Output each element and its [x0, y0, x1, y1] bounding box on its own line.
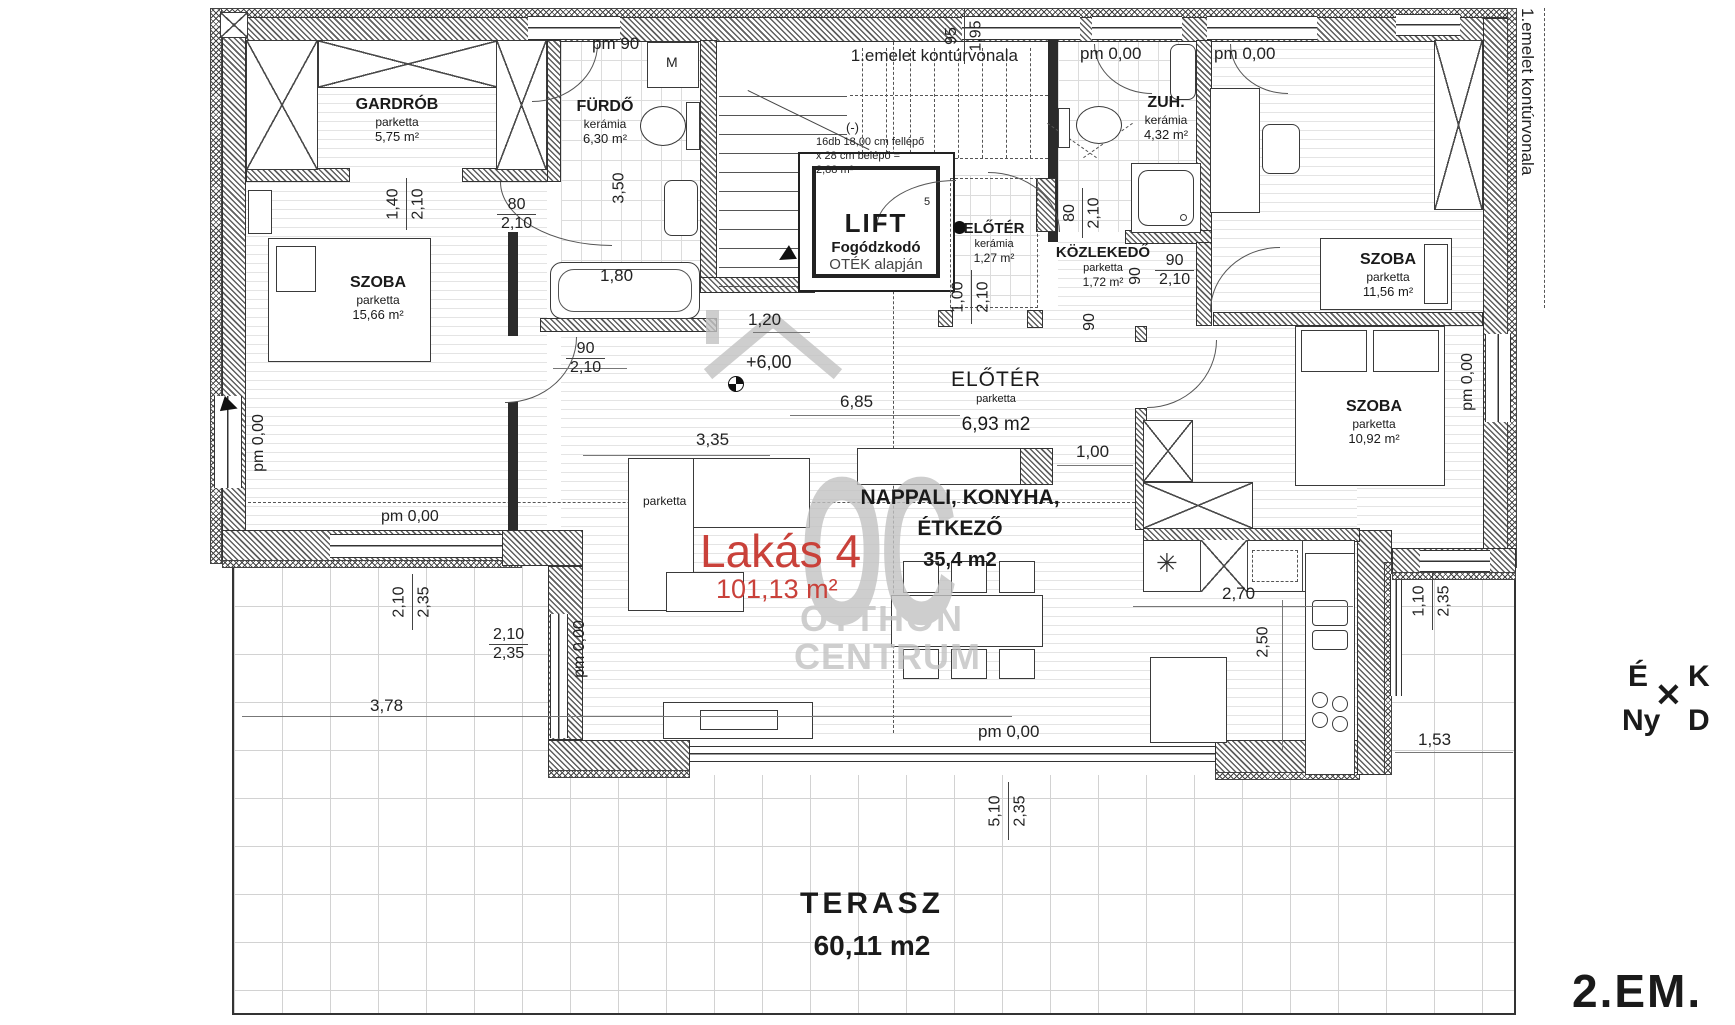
room-label-szoba-nw: SZOBA parketta 15,66 m²: [308, 274, 448, 322]
dimline-153: [1395, 752, 1513, 753]
dim-235d: 2,35: [1433, 572, 1457, 630]
dim-pm0-west: pm 0,00: [244, 408, 274, 478]
lift-title: LIFT: [812, 208, 940, 239]
terrace-name: TERASZ: [712, 886, 1032, 921]
dim-210g: 2,10: [388, 574, 412, 630]
dim-250: 2,50: [1250, 612, 1278, 672]
washbasin-zuh: [1170, 44, 1196, 100]
dim-350: 3,50: [606, 160, 634, 216]
room-finish: parketta: [916, 393, 1076, 406]
nightstand-szoba-nw: [248, 190, 272, 234]
stairs-step-number: 5: [924, 196, 930, 208]
dimline-335: [583, 455, 770, 456]
terrace-area: 60,11 m2: [712, 929, 1032, 962]
stairs-note-line3: 2,88 m²: [816, 164, 853, 176]
dim-pm0-szoba-nw: pm 0,00: [381, 508, 439, 526]
tv-screen: [700, 710, 778, 730]
room-label-furdo: FÜRDŐ kerámia 6,30 m²: [535, 98, 675, 146]
dim-235a: 2,35: [413, 574, 437, 630]
dim-235a-text: 2,35: [416, 586, 434, 617]
corner-marker: [220, 12, 248, 38]
wall-gardrob-south-2: [462, 168, 554, 182]
contour-note-top: 1.emelet kontúrvonala: [768, 46, 1018, 66]
level-marker-icon: [728, 376, 744, 392]
dim-pm0-east: pm 0,00: [1454, 345, 1482, 419]
watermark-line2: CENTRUM: [794, 636, 981, 678]
dim-pm0-south: pm 0,00: [978, 722, 1039, 742]
contour-dashed-line: [1544, 8, 1545, 308]
window-living-east: [1390, 574, 1402, 696]
wall-corner-block: [502, 530, 583, 566]
wall-furdo-south: [540, 318, 717, 332]
dim-210a-text: 2,10: [410, 188, 428, 219]
lift-sub1: Fogódzkodó: [812, 239, 940, 257]
kitchen-island: [1150, 657, 1227, 743]
kitchen-divider-3: [1302, 540, 1303, 592]
room-name: SZOBA: [308, 274, 448, 293]
window-living-south-glazing: [690, 746, 1215, 762]
dim-210g-text: 2,10: [391, 586, 409, 617]
dim-110: 1,10: [1408, 572, 1432, 630]
dim-110-235: 1,102,35: [1408, 572, 1457, 630]
room-area: 6,30 m²: [535, 131, 675, 146]
dimline-120: [753, 332, 810, 333]
room-name: SZOBA: [1304, 398, 1444, 417]
wall-insulation-south-left: [548, 770, 690, 778]
room-area: 6,93 m2: [916, 414, 1076, 436]
dim-510-235: 5,102,35: [984, 782, 1033, 840]
dim-270: 2,70: [1222, 584, 1255, 604]
wardrobe-szoba-se-1: [1143, 420, 1193, 482]
dim-pm0-living-west: pm 0,00: [566, 612, 594, 686]
dim-80-210-kozlekedo: 802,10: [1058, 188, 1107, 238]
compass-south: D: [1688, 704, 1710, 738]
wall-eloter-block-2: [1027, 310, 1043, 328]
dimline-250: [1282, 600, 1283, 750]
dimline-378: [242, 716, 1012, 717]
dim-pm0-north2: pm 0,00: [1214, 44, 1275, 64]
dim-120: 1,20: [748, 310, 781, 330]
window-wing-south: [1420, 550, 1490, 572]
room-area: 10,92 m²: [1304, 431, 1444, 446]
dim-210c: 2,10: [972, 270, 996, 324]
dim-110-text: 1,10: [1411, 585, 1429, 616]
room-area: 1,72 m²: [1033, 275, 1173, 289]
wall-gardrob-south-1: [246, 168, 350, 182]
dim-140-210: 1,402,10: [382, 178, 431, 230]
room-label-zuh: ZUH. kerámia 4,32 m²: [1096, 94, 1236, 142]
room-area: 5,75 m²: [327, 129, 467, 144]
wall-szoba-se-west-upper: [1135, 326, 1147, 342]
room-finish: parketta: [327, 115, 467, 129]
washbasin-furdo: [664, 180, 698, 236]
dim-350-text: 3,50: [611, 172, 629, 203]
wall-insulation-right: [1507, 8, 1517, 568]
hob-burner-1: [1312, 692, 1328, 708]
dim-pm0-north1: pm 0,00: [1080, 44, 1141, 64]
dim-510: 5,10: [984, 782, 1008, 840]
contour-note-right-text: 1.emelet kontúrvonala: [1517, 8, 1537, 175]
room-finish: parketta: [308, 293, 448, 307]
dim-100-kitchen: 1,00: [1076, 442, 1109, 462]
window-szoba-nw-south: [330, 534, 502, 558]
wall-insulation-szoba-nw-south: [222, 560, 522, 568]
kitchen-dashed-unit: [1252, 550, 1298, 582]
dim-80b: 80: [1058, 188, 1082, 238]
hob-burner-3: [1312, 712, 1328, 728]
room-area: 4,32 m²: [1096, 127, 1236, 142]
dim-235c: 2,35: [1009, 782, 1033, 840]
kitchen-counter-column: [1305, 553, 1355, 775]
dim-235b-text: 2,35: [489, 645, 528, 663]
dining-chair-6: [999, 649, 1035, 679]
wall-top: [210, 17, 1516, 42]
dim-335: 3,35: [696, 430, 729, 450]
terrace-label: TERASZ 60,11 m2: [712, 886, 1032, 962]
dishwasher-symbol: ✳: [1156, 548, 1178, 579]
room-name: SZOBA: [1318, 251, 1458, 270]
dim-210f-text: 2,10: [566, 359, 605, 377]
dim-90-eloter: 90: [1078, 296, 1102, 348]
dim-210a: 2,10: [407, 178, 431, 230]
dim-510-text: 5,10: [987, 795, 1005, 826]
wall-stair-west: [700, 40, 717, 293]
wardrobe-szoba-ne: [1434, 40, 1483, 210]
room-finish: kerámia: [535, 117, 675, 131]
apartment-area: 101,13 m²: [716, 574, 838, 605]
compass-east: K: [1688, 660, 1710, 694]
dim-80-210-gardrob: 802,10: [497, 196, 536, 233]
stair-dashed-8: [1030, 48, 1031, 158]
pillow-szoba-se-1: [1301, 330, 1367, 372]
dim-210-235-living: 2,102,35: [489, 626, 528, 663]
wall-living-south-left: [548, 740, 690, 772]
dim-235d-text: 2,35: [1436, 585, 1454, 616]
dim-153: 1,53: [1418, 730, 1451, 750]
window-corner-north: [1396, 14, 1460, 36]
dim-90-eloter-text: 90: [1081, 313, 1099, 331]
wall-corridor-east: [1196, 242, 1212, 326]
chair-szoba-ne: [1262, 124, 1300, 174]
room-name: ELŐTÉR: [916, 368, 1076, 393]
room-label-eloter-nagy: ELŐTÉR parketta 6,93 m2: [916, 368, 1076, 436]
lift-sub2: OTÉK alapján: [812, 256, 940, 274]
watermark-house-chimney: [706, 310, 719, 344]
dim-210d-text: 2,10: [1086, 197, 1104, 228]
dim-210d: 2,10: [1083, 188, 1107, 238]
room-label-szoba-se: SZOBA parketta 10,92 m²: [1304, 398, 1444, 446]
room-name: GARDRÓB: [327, 96, 467, 115]
sofa-finish-label: parketta: [643, 494, 686, 508]
wall-between-szoba: [1213, 312, 1483, 326]
wall-szoba-nw-east-lower: [508, 402, 518, 530]
wardrobe-gardrob-top: [318, 40, 498, 88]
dim-80b-text: 80: [1061, 204, 1079, 222]
wall-szoba-nw-east-upper: [508, 232, 518, 336]
room-name: FÜRDŐ: [535, 98, 675, 117]
dimline-270: [1133, 606, 1353, 607]
wardrobe-szoba-se-2: [1143, 482, 1253, 529]
compass-rose: É K ✕ Ny D: [1620, 658, 1720, 748]
room-finish: parketta: [1033, 262, 1173, 275]
room-name: KÖZLEKEDŐ: [1033, 244, 1173, 262]
dimline-100: [1057, 465, 1133, 466]
floor-tag: 2.EM.: [1572, 964, 1702, 1018]
compass-west: Ny: [1622, 704, 1660, 738]
dim-100-210-eloter: 1,002,10: [947, 270, 996, 324]
floor-plan: M ✳: [0, 0, 1735, 1025]
sideboard-hall-end: [1020, 448, 1053, 485]
room-name: ELŐTÉR: [934, 220, 1054, 238]
dim-100a-text: 1,00: [950, 281, 968, 312]
dim-90b-text: 90: [566, 340, 605, 359]
stairs-note-line2: x 28 cm belépő =: [816, 150, 900, 162]
room-label-gardrob: GARDRÓB parketta 5,75 m²: [327, 96, 467, 144]
toilet-tank-furdo: [686, 102, 700, 150]
compass-north: É: [1628, 660, 1648, 694]
dim-140: 1,40: [382, 178, 406, 230]
dim-80-text: 80: [497, 196, 536, 215]
dim-100a: 1,00: [947, 270, 971, 324]
room-finish: parketta: [1318, 270, 1458, 284]
dim-pm0-east-text: pm 0,00: [1459, 353, 1477, 411]
lift-label: LIFT Fogódzkodó OTÉK alapján: [812, 208, 940, 274]
kitchen-sink-1: [1312, 600, 1348, 626]
dim-pm0-west-text: pm 0,00: [250, 414, 268, 472]
contour-note-right: 1.emelet kontúrvonala: [1537, 8, 1704, 28]
wall-right: [1483, 18, 1509, 560]
dim-180: 1,80: [600, 266, 633, 286]
room-finish: kerámia: [1096, 113, 1236, 127]
window-szoba-se-east: [1485, 334, 1511, 422]
room-area: 11,56 m²: [1318, 284, 1458, 299]
dim-pm0-living-west-text: pm 0,00: [571, 620, 589, 678]
room-area: 15,66 m²: [308, 307, 448, 322]
dim-210-235-szoba: 2,102,35: [388, 574, 437, 630]
window-zuh-north: [1092, 16, 1182, 40]
apartment-name: Lakás 4: [700, 524, 861, 578]
dim-140-text: 1,40: [385, 188, 403, 219]
room-name: ZUH.: [1096, 94, 1236, 113]
dim-95-text: 95: [943, 27, 961, 45]
dim-250-text: 2,50: [1255, 626, 1273, 657]
toilet-tank-zuh: [1058, 108, 1070, 148]
dim-235c-text: 2,35: [1012, 795, 1030, 826]
shower-drain: [1180, 214, 1187, 221]
stairs-note-line1: 16db 18,00 cm fellépő: [816, 136, 924, 148]
dim-685: 6,85: [840, 392, 873, 412]
dim-90-210-szoba-nw: 902,10: [566, 340, 605, 377]
hob-burner-2: [1332, 696, 1348, 712]
stairs-minus-mark: (-): [846, 120, 859, 135]
kitchen-sink-2: [1312, 630, 1348, 650]
washing-machine-label: M: [666, 54, 678, 70]
room-label-szoba-ne: SZOBA parketta 11,56 m²: [1318, 251, 1458, 299]
dim-pm90: pm 90: [592, 34, 639, 54]
level-marker-value: +6,00: [746, 352, 792, 373]
stair-dashed-mid: [850, 95, 1048, 96]
room-name-line1: NAPPALI, KONYHA,: [810, 486, 1110, 511]
room-label-kozlekedo: KÖZLEKEDŐ parketta 1,72 m²: [1033, 244, 1173, 289]
dim-210c-text: 2,10: [975, 281, 993, 312]
room-finish: parketta: [1304, 417, 1444, 431]
window-szoba-ne-north: [1207, 16, 1317, 40]
dim-378: 3,78: [370, 696, 403, 716]
dim-210b-text: 2,10: [497, 215, 536, 233]
wardrobe-gardrob-left: [246, 40, 318, 170]
hob-burner-4: [1332, 716, 1348, 732]
pillow-szoba-se-2: [1373, 330, 1439, 372]
dim-210h-text: 2,10: [489, 626, 528, 645]
